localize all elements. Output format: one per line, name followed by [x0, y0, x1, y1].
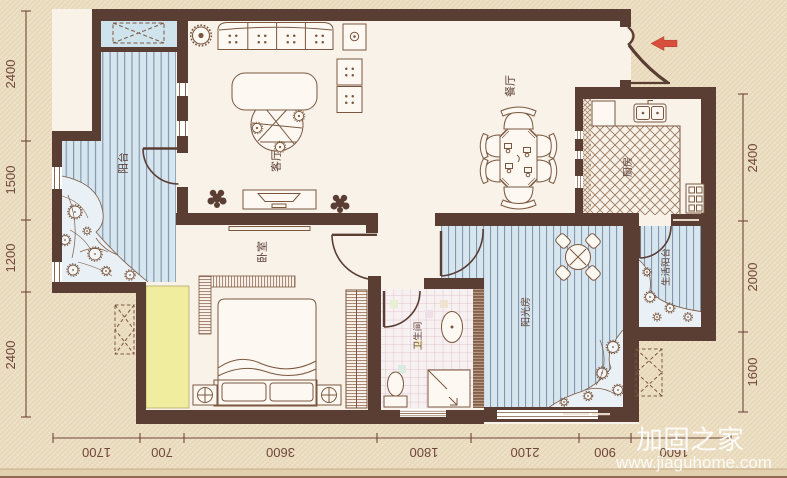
svg-text:1600: 1600	[745, 358, 760, 387]
svg-text:2000: 2000	[745, 263, 760, 292]
svg-text:700: 700	[151, 445, 173, 460]
svg-text:2100: 2100	[511, 445, 540, 460]
svg-text:900: 900	[594, 445, 616, 460]
svg-text:2400: 2400	[3, 60, 18, 89]
svg-text:2400: 2400	[745, 144, 760, 173]
svg-text:www.jiaguhome.com: www.jiaguhome.com	[615, 453, 772, 472]
svg-text:1500: 1500	[3, 166, 18, 195]
svg-text:1700: 1700	[82, 445, 111, 460]
svg-text:2400: 2400	[3, 341, 18, 370]
svg-text:1800: 1800	[410, 445, 439, 460]
svg-text:3600: 3600	[266, 445, 295, 460]
svg-text:1200: 1200	[3, 244, 18, 273]
